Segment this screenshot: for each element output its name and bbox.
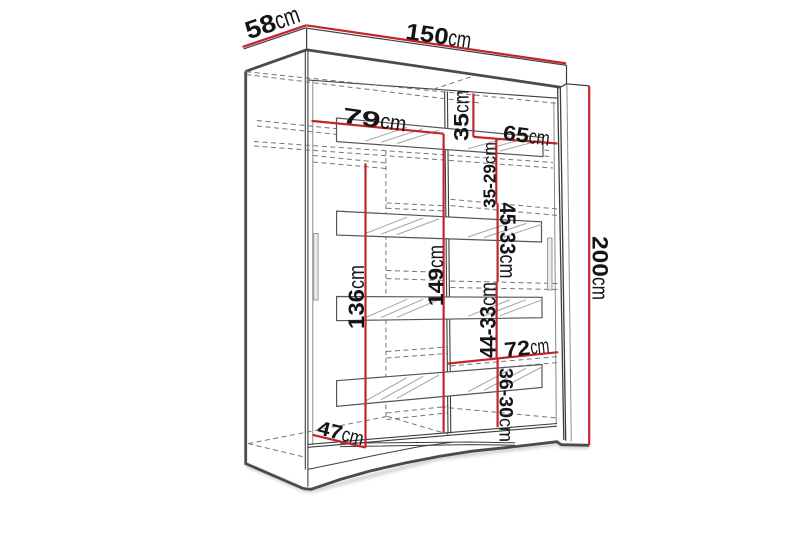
svg-text:149cm: 149cm [425, 245, 448, 306]
svg-text:45-33cm: 45-33cm [495, 203, 520, 279]
svg-text:136cm: 136cm [344, 265, 369, 329]
svg-text:35cm: 35cm [451, 90, 474, 141]
svg-text:44-33cm: 44-33cm [475, 282, 500, 358]
svg-text:72cm: 72cm [503, 334, 550, 362]
svg-text:35-29cm: 35-29cm [479, 142, 499, 208]
svg-text:36-30cm: 36-30cm [495, 368, 516, 442]
svg-text:200cm: 200cm [588, 236, 613, 300]
